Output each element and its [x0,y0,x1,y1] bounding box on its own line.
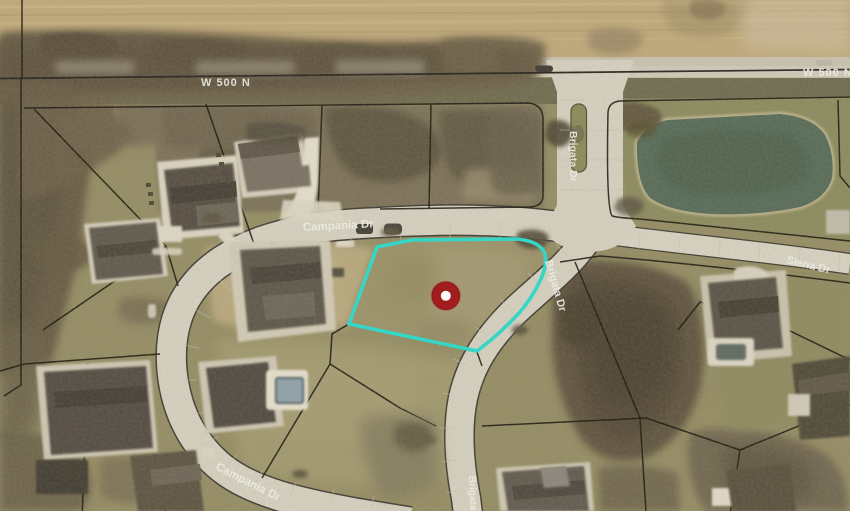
svg-text:W 500 N: W 500 N [201,77,251,89]
svg-text:W 500 N: W 500 N [803,67,850,79]
svg-text:Brigata Dr: Brigata Dr [567,131,579,182]
